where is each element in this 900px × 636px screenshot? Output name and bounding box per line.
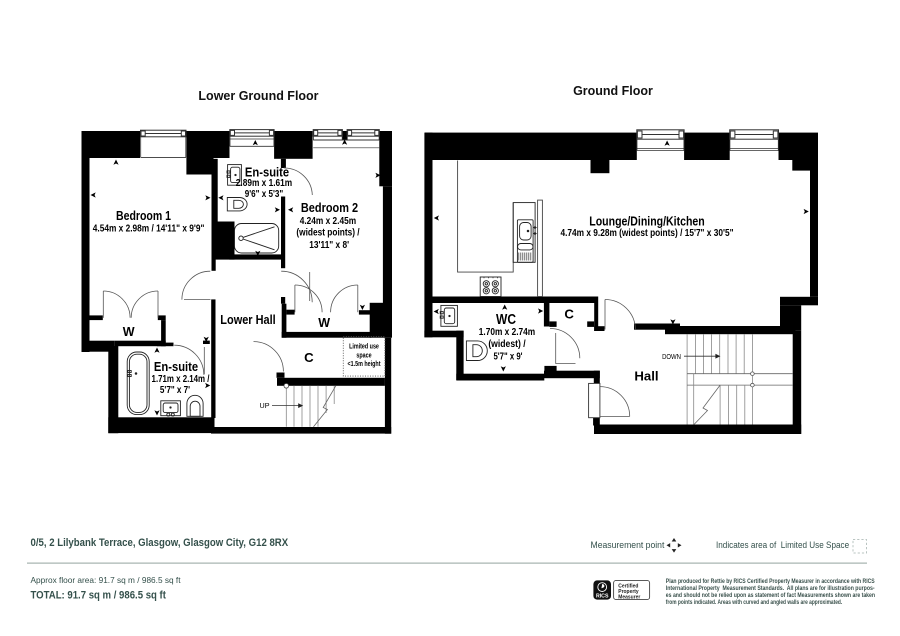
svg-text:5'7" x 7': 5'7" x 7' (160, 384, 190, 395)
svg-text:Indicates area of Limited Use: Indicates area of Limited Use Space (716, 540, 849, 550)
svg-text:Approx floor area: 91.7 sq m /: Approx floor area: 91.7 sq m / 986.5 sq … (31, 575, 182, 585)
svg-text:W: W (123, 325, 135, 339)
svg-text:Lower Hall: Lower Hall (220, 312, 275, 327)
svg-text:Measurer: Measurer (618, 594, 641, 600)
svg-text:Limited use: Limited use (349, 343, 379, 351)
svg-text:Bedroom 2: Bedroom 2 (301, 200, 358, 215)
svg-text:DOWN: DOWN (662, 353, 681, 361)
svg-text:En-suite: En-suite (154, 359, 198, 374)
svg-text:1.71m x 2.14m /: 1.71m x 2.14m / (152, 373, 210, 384)
svg-text:space: space (356, 352, 372, 360)
svg-text:es and should not be relied up: es and should not be relied upon as stat… (666, 593, 876, 600)
svg-text:from points indicated. Areas w: from points indicated. Areas with curved… (666, 599, 843, 606)
svg-text:C: C (304, 350, 314, 365)
svg-text:4.24m x 2.45m: 4.24m x 2.45m (300, 214, 356, 226)
svg-text:RICS: RICS (596, 593, 609, 599)
svg-text:C: C (564, 306, 574, 321)
svg-text:<1.5m height: <1.5m height (348, 360, 381, 368)
svg-text:13'11" x 8': 13'11" x 8' (309, 238, 349, 250)
svg-text:TOTAL: 91.7 sq m / 986.5 sq ft: TOTAL: 91.7 sq m / 986.5 sq ft (31, 590, 167, 602)
svg-text:(widest points) /: (widest points) / (296, 226, 360, 238)
svg-text:9'6" x 5'3": 9'6" x 5'3" (245, 188, 284, 199)
svg-text:(widest) /: (widest) / (488, 338, 526, 350)
svg-text:4.74m x 9.28m (widest points): 4.74m x 9.28m (widest points) / 15'7" x … (560, 226, 733, 238)
svg-text:UP: UP (260, 401, 270, 410)
svg-text:Plan produced for Rettie by RI: Plan produced for Rettie by RICS Certifi… (666, 579, 875, 586)
svg-text:4.54m x 2.98m / 14'11" x 9'9": 4.54m x 2.98m / 14'11" x 9'9" (93, 221, 205, 233)
svg-text:5'7" x 9': 5'7" x 9' (493, 350, 522, 361)
svg-text:0/5, 2 Lilybank Terrace, Glasg: 0/5, 2 Lilybank Terrace, Glasgow, Glasgo… (31, 538, 289, 550)
svg-text:Measurement point: Measurement point (591, 540, 665, 550)
svg-text:2.89m x 1.61m: 2.89m x 1.61m (236, 176, 292, 188)
svg-text:W: W (318, 316, 330, 330)
svg-text:International Property Measur: International Property Measurement Stand… (666, 586, 875, 593)
svg-text:1.70m x 2.74m: 1.70m x 2.74m (479, 325, 535, 337)
svg-text:Hall: Hall (634, 368, 658, 383)
